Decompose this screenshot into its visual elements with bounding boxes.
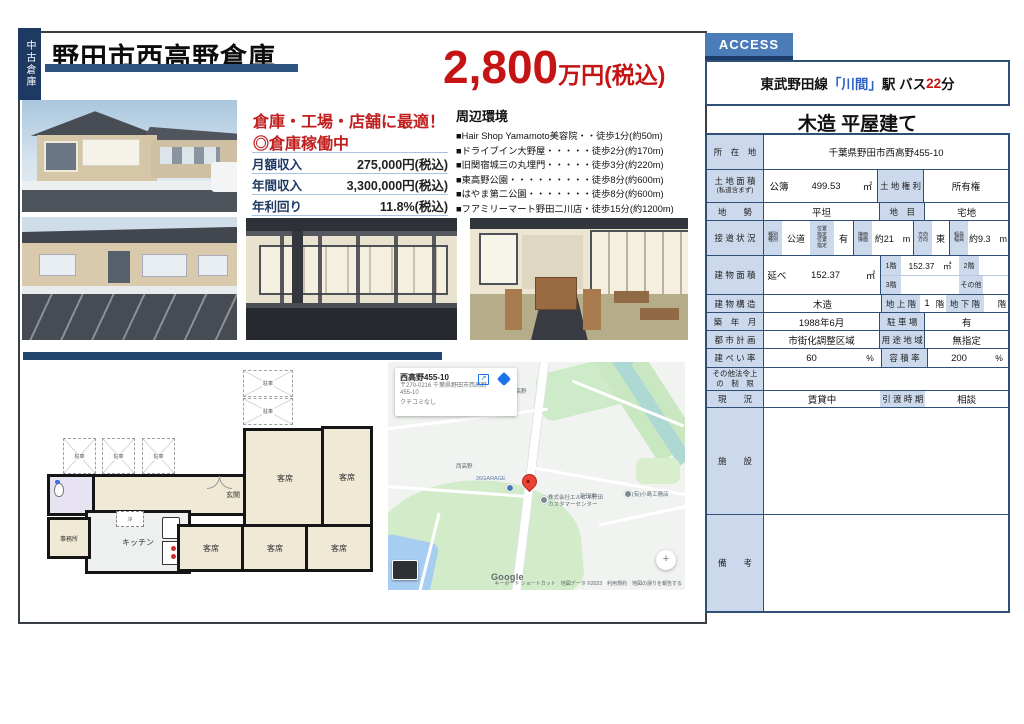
income-row: 月額収入 275,000円(税込) (252, 152, 448, 173)
room-seat: 客席 (305, 524, 373, 572)
map-card-title: 西高野455-10 (400, 372, 512, 383)
parking-stall: 駐車 (243, 370, 293, 397)
map-label: 西高野 (456, 462, 473, 470)
surroundings-item: ■東高野公園・・・・・・・・・徒歩8分(約600m) (456, 173, 696, 188)
bus-minutes: 22 (926, 76, 941, 91)
surroundings-item: ■フアミリーマート野田二川店・徒歩15分(約1200m) (456, 202, 696, 217)
price: 2,800万円(税込) (443, 40, 665, 94)
category-tab: 中古倉庫 (18, 28, 41, 100)
surroundings-item: ■はやま第二公園・・・・・・・徒歩8分(約600m) (456, 187, 696, 202)
property-flyer: 中古倉庫 野田市西高野倉庫 2,800万円(税込) 倉庫・工場・店舗に最適！ ◎… (0, 0, 1024, 724)
access-box: 東武野田線 「川間」 駅 バス 22 分 (705, 60, 1010, 106)
row-status: 現 況 賃貸中 引 渡 時 期 相談 (707, 390, 1008, 407)
row-remarks: 備 考 (707, 514, 1008, 611)
parking-stall: 駐車 (243, 398, 293, 425)
row-terrain: 地 勢 平坦 地 目 宅地 (707, 202, 1008, 220)
row-location: 所 在 地 千葉県野田市西高野455-10 (707, 135, 1008, 169)
photo-exterior-front (22, 100, 237, 212)
street-view-control[interactable] (392, 560, 418, 580)
access-tab: ACCESS (705, 33, 793, 60)
row-other-law: その他法令上 の 制 限 (707, 367, 1008, 390)
row-road: 接 道 状 況 種別 種別 公道 位置 指定 位置 指定 有 接面 接面 約21… (707, 220, 1008, 255)
row-land-area: 土 地 面 積(私道含まず) 公簿 499.53 ㎡ 土 地 権 利 所有権 (707, 169, 1008, 202)
photo-exterior-parking (22, 217, 237, 340)
fridge: 冷 (116, 511, 144, 527)
map-embed[interactable]: 東高野 ドライブイン大野屋 西高野 26GARAGE 新田戸 (有)小島工務店 … (388, 362, 685, 590)
property-table: 所 在 地 千葉県野田市西高野455-10 土 地 面 積(私道含まず) 公簿 … (705, 133, 1010, 613)
surroundings-item: ■旧関宿城三の丸埋門・・・・・徒歩3分(約220m) (456, 158, 696, 173)
pan-control[interactable]: + (656, 550, 676, 570)
parking-stall: 駐車 (63, 438, 96, 474)
row-structure: 建 物 構 造 木造 地 上 階 1 階 地 下 階 階 (707, 294, 1008, 312)
room-label: 事務所 (60, 534, 78, 543)
station-name: 「川間」 (828, 73, 882, 93)
surroundings-title: 周辺環境 (456, 106, 696, 125)
location-value: 千葉県野田市西高野455-10 (764, 135, 1008, 169)
highlight-line1: 倉庫・工場・店舗に最適！ (253, 108, 445, 132)
row-coverage: 建 ぺ い 率 60 % 容 積 率 200 % (707, 348, 1008, 367)
title-underline (45, 64, 298, 72)
highlight-line2: ◎倉庫稼働中 (253, 130, 349, 154)
room-seat: 客席 (321, 426, 373, 529)
photo-interior-corridor (246, 218, 457, 340)
room-label: 玄関 (226, 490, 240, 500)
parking-stall: 駐車 (142, 438, 175, 474)
surroundings-item: ■ドライブイン大野屋・・・・・徒歩2分(約170m) (456, 144, 696, 159)
room-seat: 客席 (177, 524, 245, 572)
surroundings-item: ■Hair Shop Yamamoto美容院・・徒歩1分(約50m) (456, 129, 696, 144)
room-office: 事務所 (47, 517, 91, 559)
map-attribution[interactable]: キーボード ショートカット 地図データ ©2023 利用規約 地図の誤りを報告す… (494, 580, 682, 587)
map-label: カスタマーセンター (548, 500, 598, 508)
building-headline: 木造 平屋建て (705, 109, 1010, 136)
price-unit: 万円(税込) (558, 62, 665, 88)
price-amount: 2,800 (443, 41, 558, 93)
map-info-card[interactable]: 西高野455-10 〒270-0216 千葉県野田市西高野 455-10 クチコ… (395, 368, 517, 416)
map-label: 26GARAGE (476, 476, 506, 482)
row-built: 築 年 月 1988年6月 駐 車 場 有 (707, 312, 1008, 330)
room-label: キッチン (122, 537, 154, 548)
income-table: 月額収入 275,000円(税込) 年間収入 3,300,000円(税込) 年利… (252, 152, 448, 216)
photo-interior-dining (470, 218, 688, 340)
row-facility: 施 設 (707, 407, 1008, 514)
room-kitchen: キッチン 冷 (85, 510, 191, 574)
open-in-new-icon[interactable]: ↗ (478, 374, 489, 385)
room-seat: 客席 (241, 524, 309, 572)
room-seat: 客席 (243, 428, 327, 528)
surroundings: 周辺環境 ■Hair Shop Yamamoto美容院・・徒歩1分(約50m) … (456, 106, 696, 217)
map-label: (有)小島工務店 (632, 490, 669, 498)
row-building-area: 建 物 面 積 延べ 152.37 ㎡ 1階 152.37 ㎡ 2階 3階 その… (707, 255, 1008, 294)
floorplan: 駐車 駐車 駐車 駐車 駐車 玄関 キッチン 冷 事務所 客席 客席 客席 客席… (25, 362, 381, 614)
row-city-plan: 都 市 計 画 市街化調整区域 用 途 地 域 無指定 (707, 330, 1008, 348)
income-row: 年利回り 11.8%(税込) (252, 194, 448, 216)
section-divider (23, 352, 442, 360)
income-row: 年間収入 3,300,000円(税込) (252, 173, 448, 194)
parking-stall: 駐車 (102, 438, 135, 474)
